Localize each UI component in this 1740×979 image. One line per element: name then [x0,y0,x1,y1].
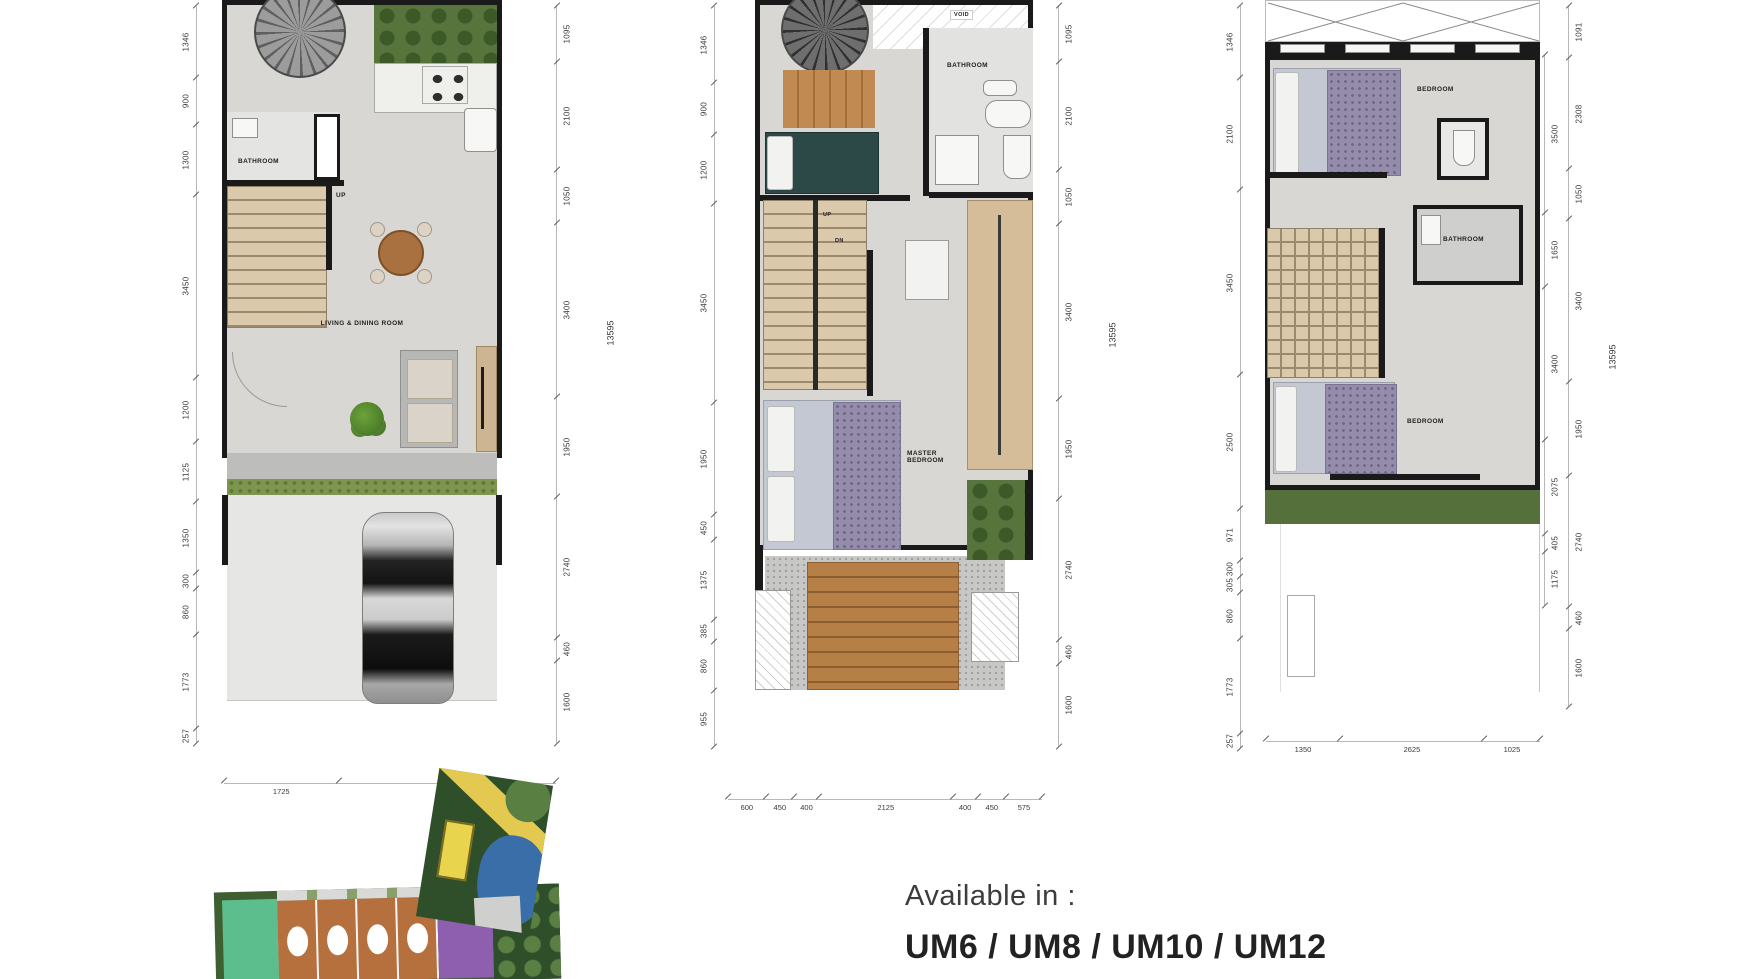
dim-label: 1346 [182,32,191,51]
dim-segment: 257 [176,729,196,743]
plant-icon [350,402,384,436]
dim-label: 450 [986,803,999,812]
dim-label: 460 [1065,645,1074,659]
plan2-dims-right: 1095210010503400195027404601600 [1058,6,1079,746]
dim-label: 2100 [1065,107,1074,126]
sofa-cushion [407,403,453,443]
dim-segment: 1346 [1220,6,1240,78]
toilet-icon [1003,135,1031,179]
dim-label: 1300 [182,150,191,169]
living-dining-label: LIVING & DINING ROOM [272,320,452,327]
bathroom-sink-icon [983,80,1017,96]
dim-label: 1350 [182,528,191,547]
dim-segment: 2740 [557,497,577,637]
dim-segment: 3400 [1545,287,1565,440]
blanket-icon [1327,70,1401,176]
dim-label: 1650 [1551,240,1560,259]
unit-label-oval [287,926,309,957]
dim-segment: 2100 [1220,78,1240,190]
dim-segment: 1950 [1059,399,1079,499]
dim-segment: 1600 [1059,664,1079,746]
dim-segment: 1025 [1484,742,1540,758]
up-label: UP [336,192,346,199]
plan2-dims-bottom: 6004504002125400450575 [728,799,1042,816]
dim-label: 257 [182,729,191,743]
pillow-icon [767,406,795,472]
interior-wall [929,192,1033,198]
sofa-cushion [407,359,453,399]
dim-label: 2740 [1065,560,1074,579]
dim-label: 900 [700,102,709,116]
roof-bracing-icon [1266,1,1540,43]
dim-label: 3450 [1226,273,1235,292]
dim-label: 971 [1226,528,1235,542]
dim-label: 1200 [700,160,709,179]
dim-label: 1773 [182,673,191,692]
dim-segment: 2308 [1569,58,1589,169]
dim-label: 1050 [1575,185,1584,204]
dim-label: 1125 [182,463,191,481]
dim-label: 1773 [1226,677,1235,696]
dim-segment: 1200 [176,378,196,442]
dim-segment: 1773 [1220,639,1240,734]
dim-label: 405 [1551,536,1560,550]
unit-label-oval [407,923,429,954]
dim-segment: 860 [1220,593,1240,639]
dim-segment: 971 [1220,509,1240,561]
chair-icon [370,222,385,237]
plan3-dims-right-inner: 35001650340020754051175 [1544,55,1565,605]
plan3-total-dim: 13595 [1608,344,1618,369]
tv-console-icon [476,346,497,452]
dim-segment: 1200 [694,135,714,204]
dim-segment: 1095 [557,6,577,62]
dim-segment: 3500 [1545,55,1565,213]
dim-segment: 600 [728,800,766,816]
dim-label: 1346 [700,35,709,54]
side-wall-stub [755,550,763,590]
tv-screen [481,367,484,429]
dim-segment: 1346 [176,6,196,78]
dim-label: 1350 [1295,745,1312,754]
bathroom-sink-icon [232,118,258,138]
toilet-icon [1453,130,1475,166]
dim-segment: 955 [694,691,714,746]
bathroom-area [1413,205,1523,285]
blanket-icon [833,402,901,550]
plan3-dims-right-outer: 1091230810503400195027404601600 [1568,6,1589,706]
dim-segment: 2740 [1059,499,1079,640]
dim-label: 300 [182,574,191,588]
dim-segment: 1095 [1059,6,1079,62]
dim-label: 2740 [1575,532,1584,551]
dim-label: 3450 [700,294,709,313]
window-icon [1345,44,1390,53]
plan2-dims-left: 13469001200345019504501375385860955 [694,6,715,746]
dim-segment: 385 [694,620,714,642]
dim-label: 400 [959,803,972,812]
dim-label: 900 [182,94,191,108]
dim-label: 860 [700,659,709,673]
stair-wall [326,186,332,270]
dim-label: 460 [563,642,572,656]
dim-label: 1375 [700,571,709,590]
dim-segment: 3450 [1220,190,1240,375]
dim-label: 3500 [1551,124,1560,143]
dim-label: 1050 [1065,188,1074,207]
table-top [378,230,424,276]
plan1-dims-right: 1095210010503400195027404601600 [556,6,577,743]
wardrobe-icon [967,200,1033,470]
plan1-total-dim: 13595 [606,320,616,345]
dim-label: 1091 [1575,23,1584,42]
dim-segment: 450 [978,800,1006,816]
bathroom-label: BATHROOM [947,62,988,69]
dim-label: 2125 [877,803,894,812]
stove-icon [422,66,468,104]
chair-icon [370,269,385,284]
bathroom-label: BATHROOM [238,158,279,165]
dim-segment: 1950 [1569,382,1589,476]
dim-segment: 1950 [557,397,577,497]
dim-segment: 3400 [1569,219,1589,382]
dim-segment: 1350 [1266,742,1340,758]
dim-segment: 3450 [694,204,714,402]
dim-segment: 2125 [819,800,952,816]
dim-segment: 1650 [1545,213,1565,287]
dim-label: 2100 [1226,125,1235,144]
side-wall-stub [222,495,228,565]
dim-label: 1950 [700,449,709,468]
dim-label: 3400 [563,301,572,320]
blanket-icon [1325,384,1397,474]
dim-label: 1095 [563,25,572,44]
dn-label: DN [835,238,844,244]
interior-wall [1330,474,1480,480]
dim-segment: 1950 [694,403,714,515]
dim-segment: 1175 [1545,552,1565,605]
dim-segment: 405 [1545,534,1565,552]
dim-segment: 1375 [694,540,714,619]
dim-label: 3450 [182,277,191,296]
dim-label: 1950 [1575,420,1584,439]
green-roof-strip [1265,490,1540,524]
garden-patch [374,5,497,63]
dim-segment: 1350 [176,502,196,574]
dim-segment: 300 [1220,561,1240,577]
dim-segment: 1600 [1569,629,1589,706]
up-label: UP [823,212,831,218]
void-label: VOID [950,10,973,20]
pillow-icon [767,476,795,542]
availability-label: Available in : [905,880,1076,913]
master-label-line2: BEDROOM [907,457,944,464]
dim-label: 257 [1226,734,1235,748]
window-icon [1410,44,1455,53]
dim-segment: 2740 [1569,476,1589,607]
dim-label: 3400 [1065,302,1074,321]
glass-panel-icon [755,590,791,690]
dim-segment: 1773 [176,635,196,729]
pillow-icon [1275,386,1297,472]
site-plan-thumbnail [215,856,595,979]
bedroom-top-label: BEDROOM [1417,86,1454,93]
dim-label: 860 [1226,609,1235,623]
dim-label: 1950 [1065,440,1074,459]
dim-label: 1600 [1575,658,1584,677]
dim-label: 955 [700,711,709,725]
plan1-dims-left: 1346900130034501200112513503008601773257 [176,6,197,743]
floorplan-ground: BATHROOM UP LIVING & DINING ROOM [222,0,502,705]
shower-icon [935,135,979,185]
roof-skylight [1265,0,1540,42]
site-green-lot [222,899,279,979]
dim-segment: 400 [794,800,819,816]
master-label-line1: MASTER [907,450,944,457]
dim-label: 1600 [1065,695,1074,714]
dim-label: 2740 [563,558,572,577]
pillow-icon [767,136,793,190]
dim-label: 400 [800,803,813,812]
bedroom-bottom-label: BEDROOM [1407,418,1444,425]
dim-label: 600 [741,803,754,812]
window-icon [1475,44,1520,53]
wood-landing [783,70,875,128]
dim-segment: 3450 [176,195,196,378]
dim-segment: 305 [1220,577,1240,593]
dim-segment: 1125 [176,442,196,502]
dim-label: 1095 [1065,25,1074,44]
dim-label: 2500 [1226,433,1235,452]
availability-models: UM6 / UM8 / UM10 / UM12 [905,928,1326,967]
dim-label: 1950 [563,438,572,457]
dim-segment: 450 [694,515,714,541]
dim-segment: 3400 [557,223,577,397]
glass-panel-icon [971,592,1019,662]
dim-label: 1025 [1504,745,1521,754]
dim-segment: 1600 [557,661,577,743]
dim-segment: 1091 [1569,6,1589,58]
dim-segment: 2625 [1340,742,1484,758]
floorplan-third: BEDROOM BATHROOM BEDROOM [1265,0,1540,705]
grass-strip [227,479,497,495]
unit-label-oval [367,924,389,955]
site-label-box [436,820,475,882]
floorplan-second: VOID BATHROOM UP DN MASTER BEDROOM [755,0,1033,705]
dim-label: 460 [1575,611,1584,625]
dim-label: 305 [1226,578,1235,592]
dim-label: 2100 [563,106,572,125]
dim-label: 300 [1226,562,1235,576]
dim-label: 1200 [182,400,191,419]
plan3-dims-left: 13462100345025009713003058601773257 [1220,6,1241,748]
sofa-icon [400,350,458,448]
dim-label: 385 [700,623,709,637]
dim-segment: 2100 [557,62,577,170]
side-wall-stub [496,495,502,565]
wardrobe-handle [998,215,1001,455]
dim-label: 450 [700,520,709,534]
kitchen-sink-icon [464,108,497,152]
dim-label: 2308 [1575,104,1584,123]
dim-label: 575 [1018,803,1031,812]
dim-label: 1175 [1551,569,1560,587]
vanity-icon [905,240,949,300]
dim-label: 450 [774,803,787,812]
dining-table-icon [370,222,432,284]
floorplan-sheet: 1346900130034501200112513503008601773257… [0,0,1740,979]
dim-segment: 900 [176,78,196,126]
site-unit-row [277,897,439,979]
dim-segment: 2500 [1220,375,1240,509]
chair-icon [417,269,432,284]
closet-icon [314,114,340,180]
pillow-icon [1275,72,1299,174]
dim-label: 1600 [563,693,572,712]
side-wall-stub [1025,480,1033,560]
dim-segment: 575 [1006,800,1042,816]
dim-label: 3400 [1575,291,1584,310]
dim-segment: 1050 [1059,170,1079,224]
chair-icon [417,222,432,237]
dim-label: 2625 [1404,745,1421,754]
dim-label: 3400 [1551,354,1560,373]
stair-wall [867,250,873,396]
dim-segment: 1725 [224,784,339,800]
dim-label: 1346 [1226,33,1235,52]
porch-strip [227,453,497,479]
interior-wall [1265,172,1387,178]
stair-divider [813,200,818,390]
dim-segment: 860 [694,642,714,691]
dim-segment: 257 [1220,734,1240,748]
dim-segment: 3400 [1059,224,1079,399]
dim-segment: 1050 [557,170,577,224]
stair-wall [1379,228,1385,378]
staircase [1267,228,1385,378]
dim-label: 1050 [563,187,572,206]
lower-roof-outline [1280,524,1540,692]
wood-deck [807,562,959,690]
site-plan-arm [416,768,553,934]
dim-segment: 860 [176,589,196,635]
car-icon [362,512,454,704]
window-icon [1280,44,1325,53]
plan2-total-dim: 13595 [1108,322,1118,347]
unit-label-oval [327,925,349,956]
dim-segment: 1346 [694,6,714,83]
wc-room [1437,118,1489,180]
dim-segment: 2075 [1545,440,1565,534]
dim-label: 2075 [1551,478,1560,497]
dim-segment: 1300 [176,125,196,194]
staircase [227,186,327,328]
dim-segment: 400 [953,800,978,816]
master-bedroom-label: MASTER BEDROOM [907,450,944,464]
planter-box [967,480,1029,560]
dim-segment: 900 [694,83,714,135]
dim-label: 1725 [273,787,290,796]
dim-segment: 2100 [1059,62,1079,170]
dim-segment: 1050 [1569,169,1589,219]
bathroom-sink-icon [1421,215,1441,245]
bathtub-icon [985,100,1031,128]
dim-label: 860 [182,605,191,619]
plan3-dims-bottom: 135026251025 [1266,741,1540,758]
bathroom-label: BATHROOM [1443,236,1484,243]
dim-segment: 300 [176,573,196,589]
door-leaf-outline [1287,595,1315,677]
dim-segment: 450 [766,800,794,816]
